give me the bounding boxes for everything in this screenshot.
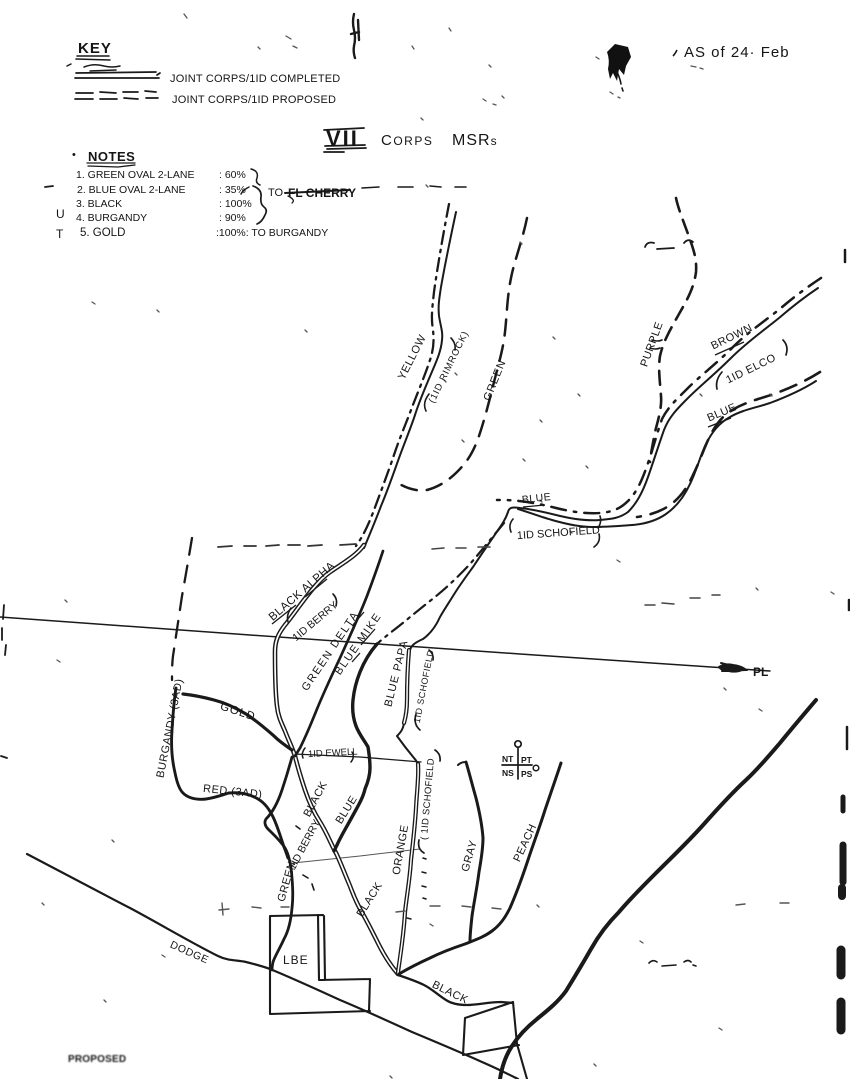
svg-text:ORANGE: ORANGE	[391, 824, 412, 876]
svg-text:2. BLUE OVAL 2-LANE: 2. BLUE OVAL 2-LANE	[77, 184, 186, 196]
svg-text:3. BLACK: 3. BLACK	[76, 198, 122, 210]
svg-text:1ID SCHOFIELD: 1ID SCHOFIELD	[517, 524, 601, 542]
svg-text:MSRs: MSRs	[452, 132, 498, 149]
svg-text:NS: NS	[502, 768, 514, 778]
svg-text:CORPS: CORPS	[381, 132, 433, 149]
svg-text:( 1ID SCHOFIELD: ( 1ID SCHOFIELD	[419, 758, 437, 841]
svg-text::100%: TO BURGANDY: :100%: TO BURGANDY	[216, 227, 328, 239]
svg-text:NOTES: NOTES	[88, 149, 135, 164]
svg-text:GRAY: GRAY	[459, 839, 479, 874]
svg-text:4. BURGANDY: 4. BURGANDY	[76, 212, 147, 224]
svg-text:DODGE: DODGE	[168, 939, 210, 967]
svg-text:AS of 24· Feb: AS of 24· Feb	[684, 44, 790, 61]
svg-text:: 35%: : 35%	[219, 184, 246, 196]
svg-text:1ID EWELL: 1ID EWELL	[308, 747, 358, 761]
svg-text:PL: PL	[753, 665, 768, 679]
svg-text:PT: PT	[521, 755, 533, 765]
svg-text:U: U	[56, 207, 65, 221]
svg-text:PS: PS	[521, 769, 533, 779]
svg-text:JOINT CORPS/1ID COMPLETED: JOINT CORPS/1ID COMPLETED	[170, 73, 340, 85]
svg-text:GREEN: GREEN	[481, 358, 508, 402]
svg-text:1ID SCHOFIELD: 1ID SCHOFIELD	[412, 649, 436, 724]
svg-text:NT: NT	[502, 754, 514, 764]
svg-text:BLACK: BLACK	[354, 880, 385, 919]
svg-text:PURPLE: PURPLE	[638, 320, 665, 368]
svg-text:•: •	[72, 149, 76, 161]
svg-text:: 100%: : 100%	[219, 198, 252, 210]
svg-text:KEY: KEY	[78, 40, 112, 57]
svg-text:GOLD: GOLD	[219, 701, 258, 724]
svg-text:: 90%: : 90%	[219, 212, 246, 224]
svg-text:VII: VII	[326, 126, 359, 151]
svg-text:LBE: LBE	[283, 953, 309, 967]
svg-text:T: T	[56, 227, 64, 241]
svg-text:5. GOLD: 5. GOLD	[80, 227, 125, 239]
svg-text:1. GREEN OVAL 2-LANE: 1. GREEN OVAL 2-LANE	[76, 169, 194, 181]
svg-text:FL CHERRY: FL CHERRY	[288, 186, 356, 200]
svg-text:TO: TO	[268, 187, 284, 199]
svg-text:BURGANDY (3AD): BURGANDY (3AD)	[155, 678, 186, 779]
svg-text:BLUE: BLUE	[521, 491, 552, 506]
svg-text:GREEN: GREEN	[275, 860, 298, 903]
svg-text:JOINT CORPS/1ID PROPOSED: JOINT CORPS/1ID PROPOSED	[172, 94, 336, 106]
svg-text:: 60%: : 60%	[219, 169, 246, 181]
svg-text:PROPOSED: PROPOSED	[68, 1054, 126, 1065]
